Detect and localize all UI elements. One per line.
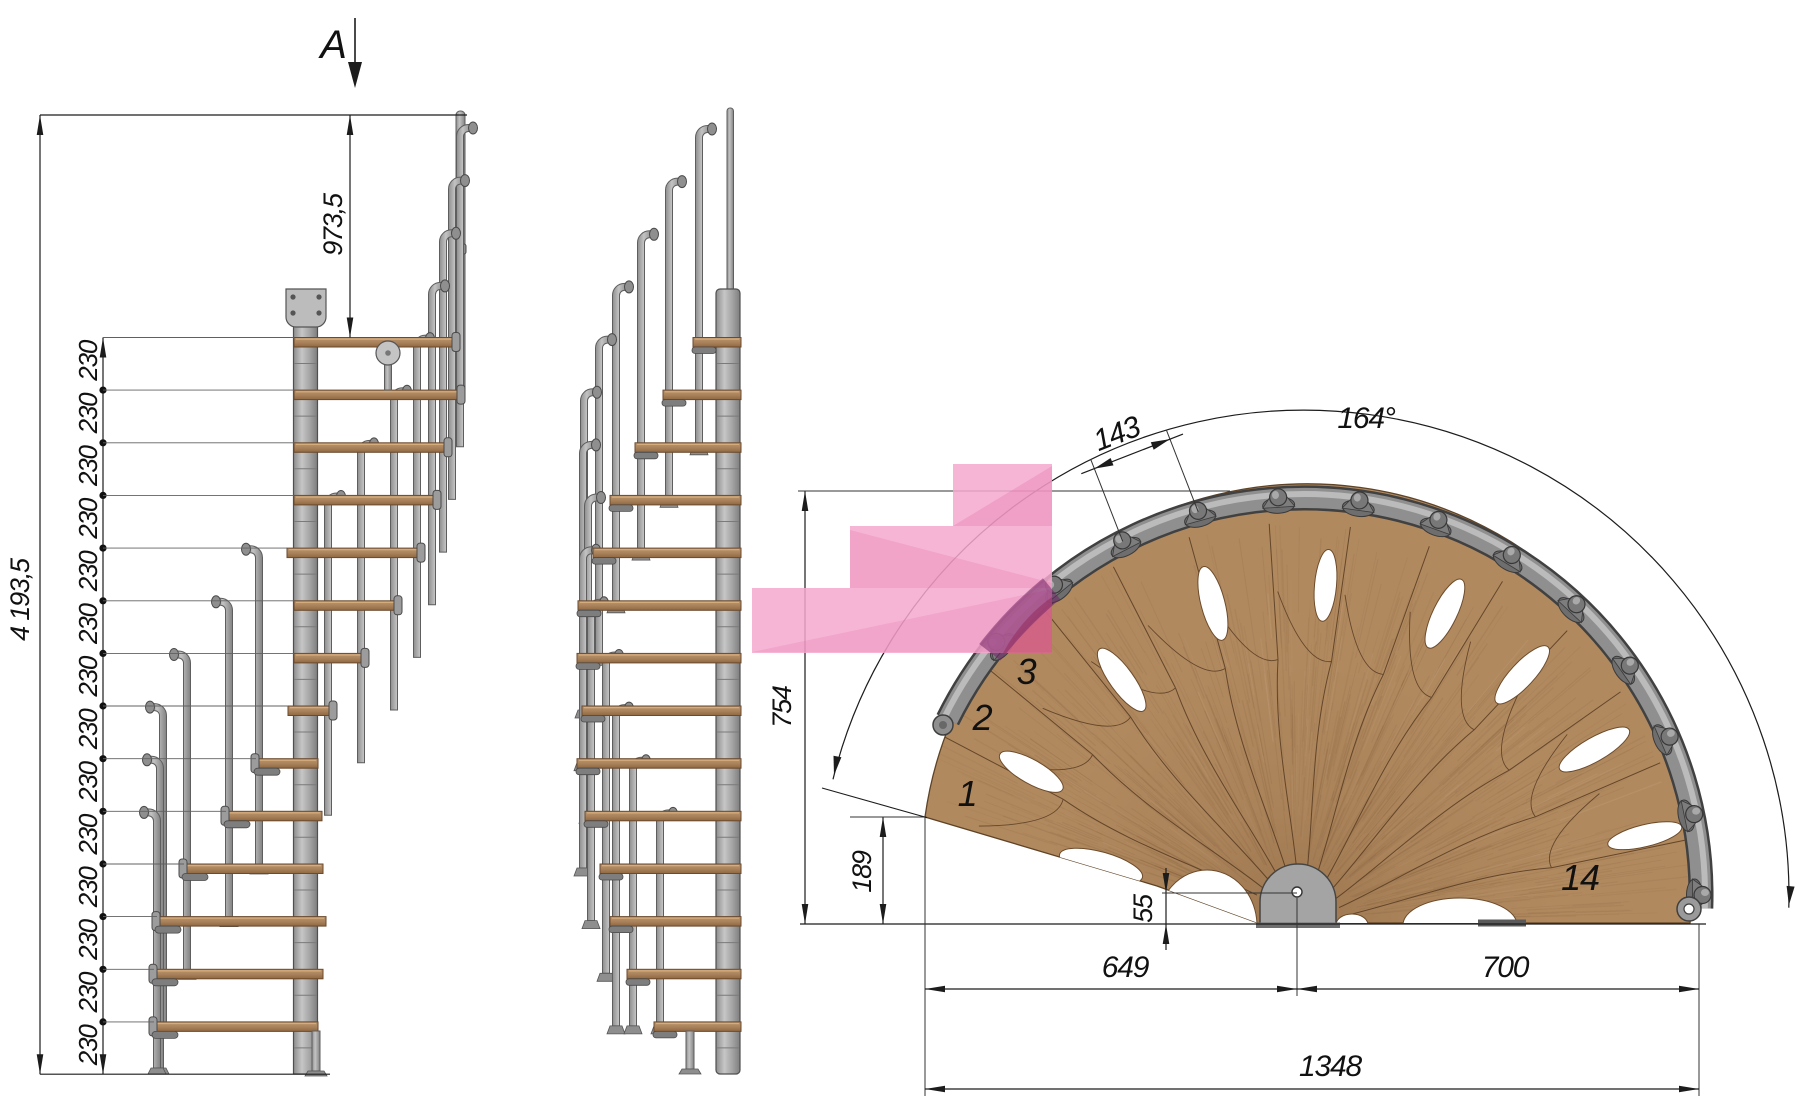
svg-text:649: 649: [1102, 951, 1150, 984]
svg-text:A: A: [318, 23, 345, 67]
svg-text:2: 2: [972, 697, 993, 738]
svg-text:230: 230: [73, 1024, 103, 1067]
svg-text:754: 754: [767, 686, 797, 728]
svg-text:189: 189: [847, 850, 877, 893]
svg-text:973,5: 973,5: [318, 192, 348, 256]
svg-text:230: 230: [73, 392, 103, 435]
svg-text:230: 230: [73, 550, 103, 593]
svg-text:230: 230: [73, 971, 103, 1014]
svg-text:14: 14: [1561, 857, 1599, 898]
svg-text:230: 230: [73, 866, 103, 909]
svg-text:700: 700: [1482, 951, 1530, 984]
svg-text:230: 230: [73, 339, 103, 382]
svg-text:1348: 1348: [1299, 1050, 1362, 1083]
svg-text:230: 230: [73, 813, 103, 856]
svg-text:230: 230: [73, 444, 103, 487]
svg-text:230: 230: [73, 497, 103, 540]
svg-text:230: 230: [73, 918, 103, 961]
svg-text:4 193,5: 4 193,5: [5, 557, 35, 641]
svg-text:230: 230: [73, 655, 103, 698]
svg-text:55: 55: [1128, 893, 1158, 923]
svg-text:164°: 164°: [1337, 402, 1395, 435]
svg-text:230: 230: [73, 760, 103, 803]
svg-text:230: 230: [73, 708, 103, 751]
svg-text:230: 230: [73, 602, 103, 645]
svg-text:1: 1: [958, 773, 977, 814]
svg-text:3: 3: [1017, 651, 1037, 692]
